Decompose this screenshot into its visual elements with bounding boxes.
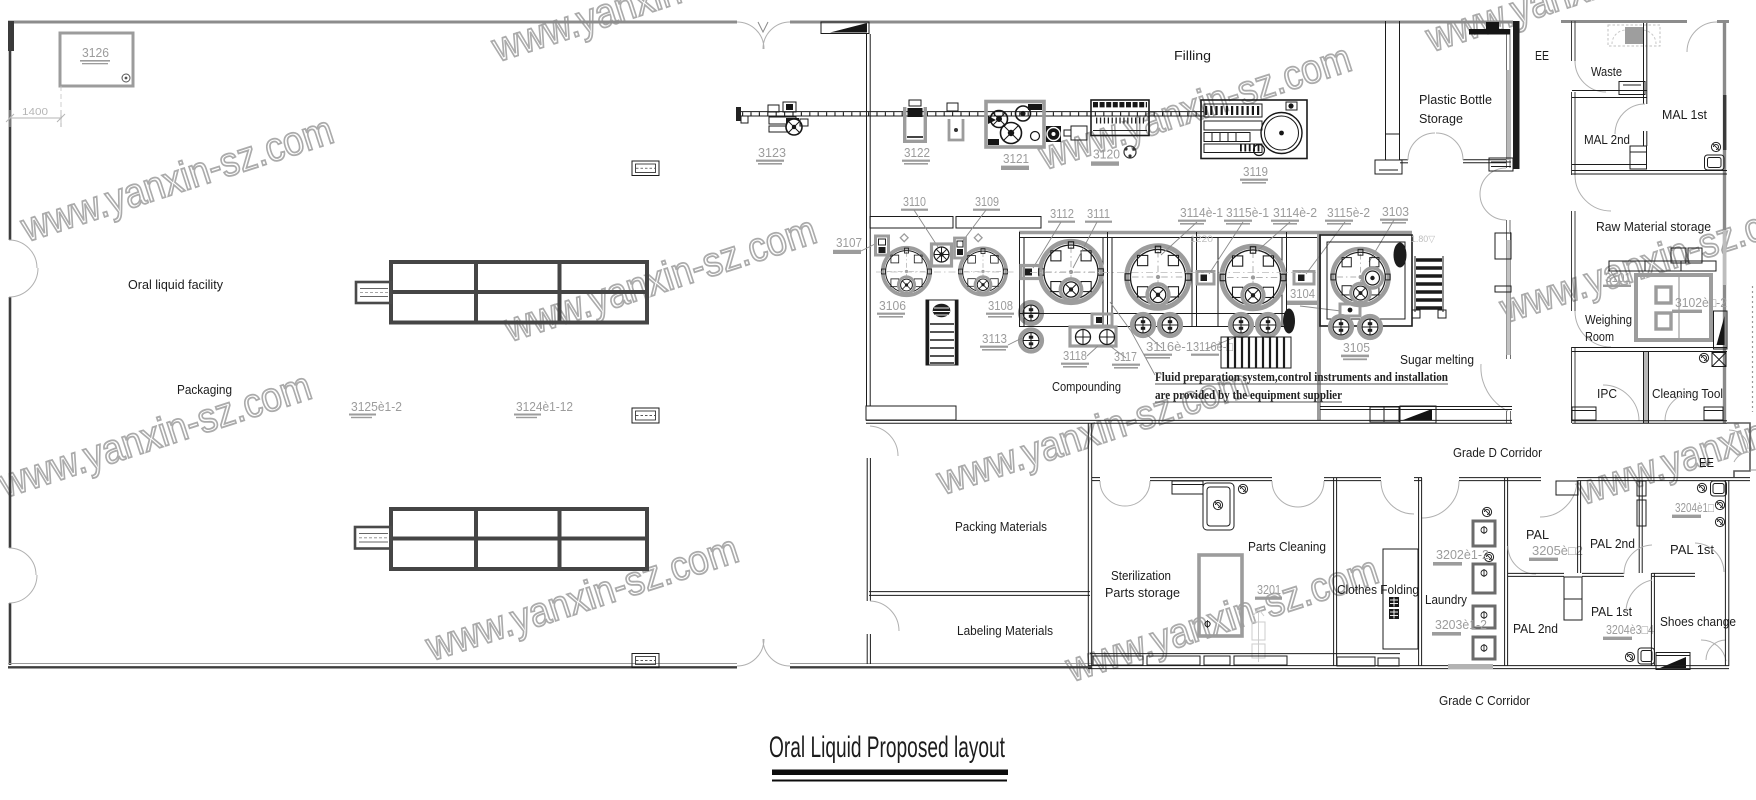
svg-text:Weighing: Weighing — [1585, 312, 1632, 327]
svg-text:3113: 3113 — [982, 332, 1007, 346]
svg-text:3108: 3108 — [988, 299, 1013, 313]
svg-text:MAL 1st: MAL 1st — [1662, 107, 1707, 122]
svg-text:3114è-2: 3114è-2 — [1273, 206, 1317, 220]
svg-text:Room: Room — [1585, 329, 1614, 344]
svg-text:3122: 3122 — [904, 146, 930, 160]
svg-text:3202è1-2: 3202è1-2 — [1436, 548, 1489, 562]
svg-text:3119: 3119 — [1243, 165, 1268, 179]
svg-text:Labeling Materials: Labeling Materials — [957, 623, 1053, 638]
svg-text:3103: 3103 — [1382, 205, 1409, 219]
svg-text:3204è3□4: 3204è3□4 — [1606, 623, 1654, 637]
svg-text:3126: 3126 — [82, 46, 109, 60]
svg-text:Shoes change: Shoes change — [1660, 614, 1736, 629]
svg-text:3203è1-2: 3203è1-2 — [1435, 618, 1487, 632]
svg-text:Filling: Filling — [1174, 48, 1211, 63]
svg-text:3204è1□: 3204è1□ — [1675, 501, 1714, 515]
svg-text:3104: 3104 — [1290, 287, 1315, 301]
svg-text:3118: 3118 — [1063, 349, 1087, 363]
svg-text:IPC: IPC — [1597, 386, 1617, 401]
svg-text:3109: 3109 — [975, 195, 999, 209]
svg-text:Laundry: Laundry — [1425, 592, 1467, 607]
svg-text:Oral Liquid Proposed layout: Oral Liquid Proposed layout — [769, 731, 1005, 764]
svg-text:1400: 1400 — [22, 106, 48, 118]
svg-text:Waste: Waste — [1591, 64, 1622, 79]
svg-text:PAL: PAL — [1526, 527, 1549, 542]
svg-text:3124è1-12: 3124è1-12 — [516, 400, 573, 414]
svg-text:Sterilization: Sterilization — [1111, 568, 1171, 583]
svg-text:3110: 3110 — [903, 195, 926, 209]
svg-text:PAL 2nd: PAL 2nd — [1513, 621, 1558, 636]
svg-text:Oral liquid facility: Oral liquid facility — [128, 277, 223, 292]
svg-text:3205è□2: 3205è□2 — [1532, 544, 1583, 558]
svg-text:3121: 3121 — [1003, 152, 1029, 166]
svg-text:3123: 3123 — [758, 146, 786, 160]
svg-text:PAL 1st: PAL 1st — [1670, 542, 1714, 557]
svg-text:Plastic Bottle: Plastic Bottle — [1419, 92, 1492, 107]
svg-text:Packaging: Packaging — [177, 382, 232, 397]
svg-text:Raw Material storage: Raw Material storage — [1596, 219, 1711, 234]
svg-text:3114è-1: 3114è-1 — [1180, 206, 1223, 220]
svg-text:3201: 3201 — [1257, 583, 1281, 597]
svg-text:Sugar melting: Sugar melting — [1400, 352, 1474, 367]
svg-text:3111: 3111 — [1087, 207, 1110, 221]
svg-text:Grade D Corridor: Grade D Corridor — [1453, 445, 1543, 460]
svg-text:Packing Materials: Packing Materials — [955, 519, 1047, 534]
svg-text:PAL 2nd: PAL 2nd — [1590, 536, 1635, 551]
svg-text:Storage: Storage — [1419, 111, 1463, 126]
svg-text:Grade C Corridor: Grade C Corridor — [1439, 693, 1531, 708]
svg-text:3115è-2: 3115è-2 — [1327, 206, 1370, 220]
svg-text:3112: 3112 — [1050, 207, 1074, 221]
svg-text:3101: 3101 — [1605, 271, 1631, 285]
svg-text:3125è1-2: 3125è1-2 — [351, 400, 402, 414]
svg-text:Clothes Folding: Clothes Folding — [1337, 582, 1419, 597]
svg-text:EE: EE — [1699, 455, 1714, 470]
svg-text:3116è-1: 3116è-1 — [1146, 340, 1193, 354]
svg-text:3102è□-2: 3102è□-2 — [1675, 296, 1727, 310]
svg-text:MAL 2nd: MAL 2nd — [1584, 132, 1630, 147]
svg-text:3106: 3106 — [879, 299, 906, 313]
svg-text:Compounding: Compounding — [1052, 379, 1121, 394]
svg-text:Parts storage: Parts storage — [1105, 585, 1180, 600]
svg-text:Parts Cleaning: Parts Cleaning — [1248, 539, 1326, 554]
svg-text:1.80▽: 1.80▽ — [1411, 234, 1436, 245]
svg-text:3105: 3105 — [1343, 341, 1370, 355]
svg-text:1220: 1220 — [1190, 234, 1213, 245]
svg-text:EE: EE — [1535, 48, 1549, 63]
svg-text:are provided by the equipment: are provided by the equipment supplier — [1155, 387, 1342, 402]
svg-text:Fluid preparation system,contr: Fluid preparation system,control instrum… — [1155, 369, 1449, 384]
svg-text:3120: 3120 — [1093, 148, 1120, 162]
svg-text:3115è-1: 3115è-1 — [1226, 206, 1269, 220]
svg-text:3107: 3107 — [836, 236, 862, 250]
